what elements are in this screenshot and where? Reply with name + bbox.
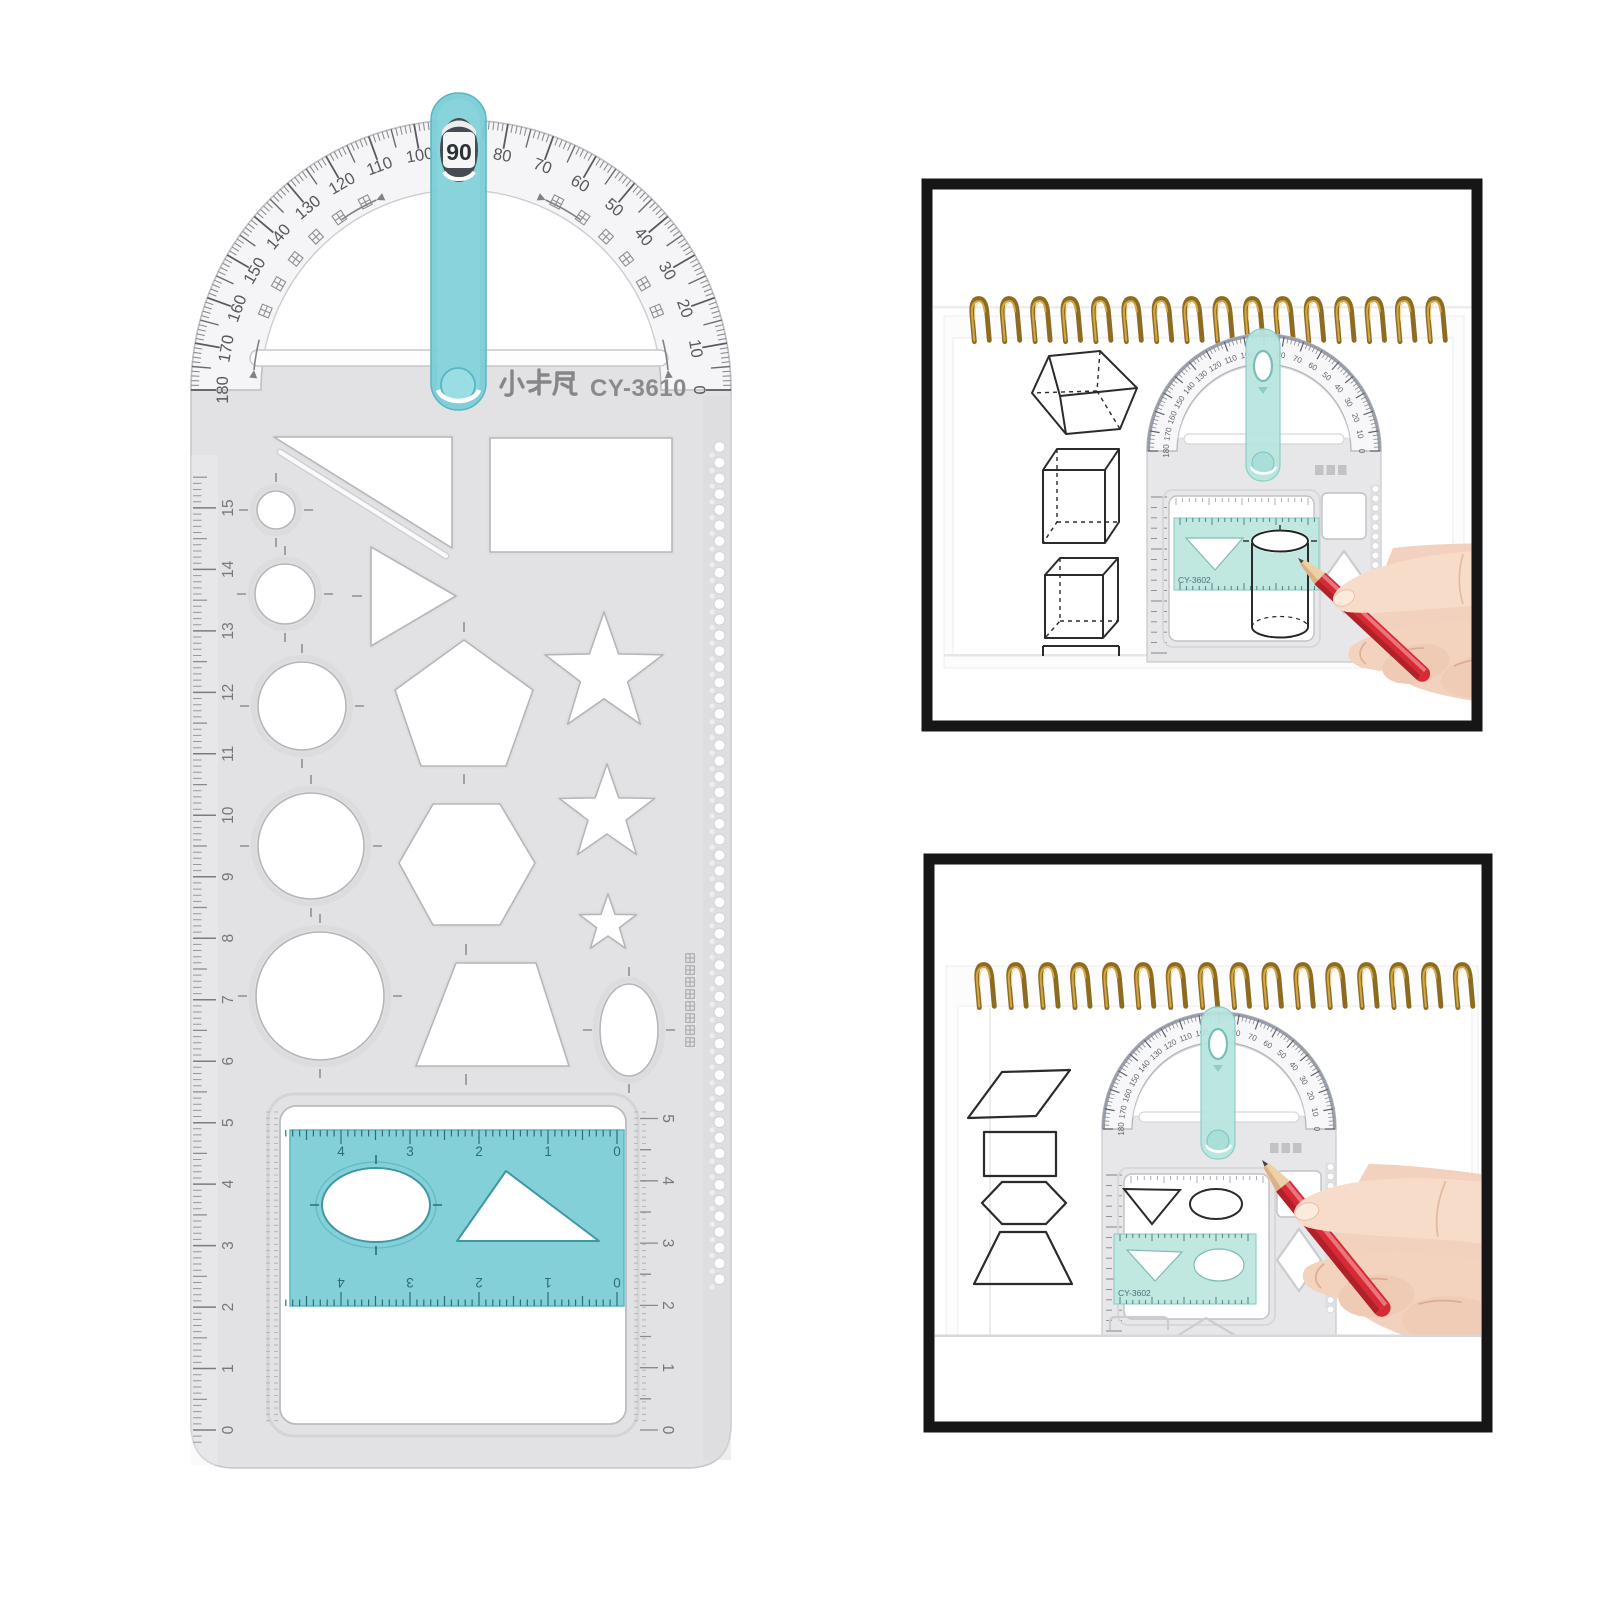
svg-text:0: 0 [613, 1144, 621, 1159]
svg-text:0: 0 [1357, 449, 1366, 454]
svg-text:4: 4 [337, 1275, 345, 1290]
svg-text:0: 0 [613, 1275, 621, 1290]
svg-text:3: 3 [406, 1275, 414, 1290]
svg-text:CY-3602: CY-3602 [1118, 1288, 1151, 1298]
svg-text:1: 1 [544, 1144, 552, 1159]
svg-text:9: 9 [220, 872, 237, 881]
svg-text:3: 3 [659, 1239, 676, 1248]
svg-text:8: 8 [220, 934, 237, 943]
svg-text:CY-3602: CY-3602 [1178, 575, 1211, 585]
svg-text:4: 4 [220, 1179, 237, 1188]
svg-text:CY-3610: CY-3610 [590, 375, 687, 402]
svg-text:10: 10 [220, 806, 237, 824]
svg-text:2: 2 [475, 1275, 483, 1290]
svg-text:180: 180 [1117, 1122, 1126, 1136]
svg-text:90: 90 [446, 139, 472, 165]
svg-text:2: 2 [475, 1144, 483, 1159]
svg-text:180: 180 [1162, 444, 1171, 458]
svg-text:0: 0 [690, 385, 708, 394]
svg-text:0: 0 [220, 1425, 237, 1434]
svg-text:13: 13 [220, 622, 237, 639]
svg-text:7: 7 [220, 995, 237, 1004]
svg-text:2: 2 [220, 1303, 237, 1312]
svg-text:1: 1 [659, 1363, 676, 1372]
svg-text:0: 0 [1312, 1127, 1321, 1132]
svg-text:1: 1 [544, 1275, 552, 1290]
svg-text:3: 3 [406, 1144, 414, 1159]
svg-text:5: 5 [659, 1114, 676, 1123]
svg-text:11: 11 [220, 746, 237, 762]
svg-text:0: 0 [659, 1426, 676, 1435]
svg-text:80: 80 [492, 145, 513, 166]
svg-text:10: 10 [685, 338, 706, 359]
svg-text:2: 2 [659, 1301, 676, 1310]
svg-text:4: 4 [337, 1144, 345, 1159]
svg-text:5: 5 [220, 1118, 237, 1127]
svg-text:6: 6 [220, 1057, 237, 1066]
svg-text:3: 3 [220, 1241, 237, 1250]
svg-text:4: 4 [659, 1176, 676, 1185]
svg-text:180: 180 [214, 376, 232, 404]
svg-text:14: 14 [220, 560, 237, 578]
svg-text:12: 12 [220, 684, 237, 701]
svg-text:1: 1 [220, 1364, 237, 1373]
svg-text:15: 15 [220, 499, 237, 516]
